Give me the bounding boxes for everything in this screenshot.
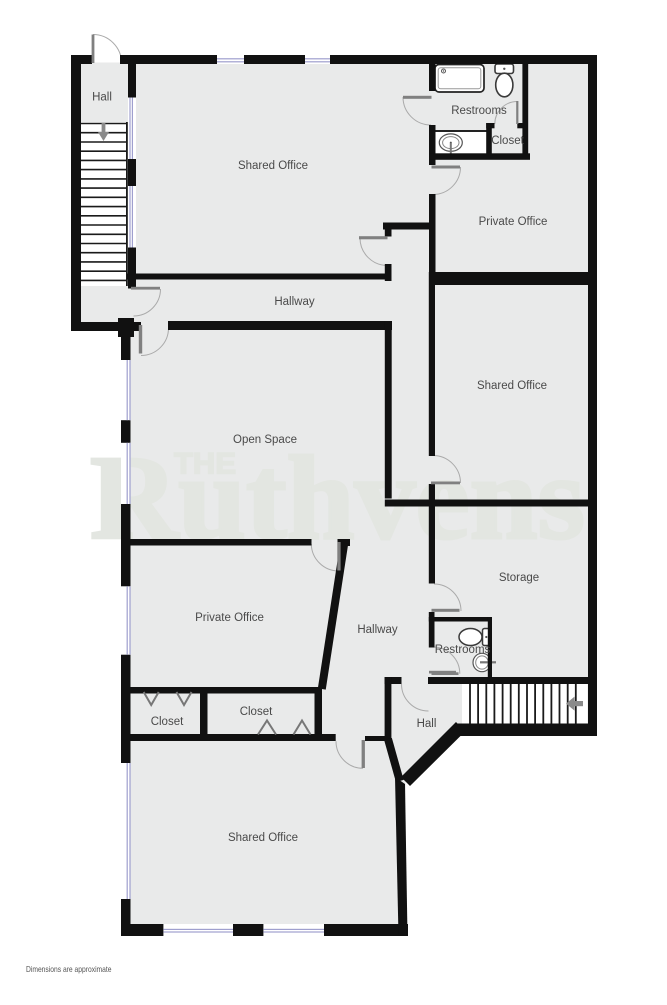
svg-text:Shared Office: Shared Office	[228, 832, 298, 844]
svg-text:Hall: Hall	[417, 718, 437, 730]
svg-text:Hallway: Hallway	[274, 296, 315, 308]
svg-text:Shared Office: Shared Office	[477, 380, 547, 392]
svg-text:Shared Office: Shared Office	[238, 160, 308, 172]
svg-text:Closet: Closet	[240, 706, 273, 718]
svg-text:Open Space: Open Space	[233, 434, 297, 446]
svg-text:Dimensions are approximate: Dimensions are approximate	[26, 964, 112, 974]
svg-text:Restrooms: Restrooms	[451, 105, 507, 117]
svg-text:Closet: Closet	[151, 716, 184, 728]
svg-text:Restrooms: Restrooms	[435, 644, 491, 656]
svg-text:Private Office: Private Office	[195, 612, 264, 624]
svg-text:Hallway: Hallway	[357, 624, 398, 636]
svg-text:Storage: Storage	[499, 572, 539, 584]
svg-text:Closet: Closet	[491, 135, 524, 147]
svg-text:Private Office: Private Office	[479, 216, 548, 228]
svg-text:Hall: Hall	[92, 92, 112, 104]
